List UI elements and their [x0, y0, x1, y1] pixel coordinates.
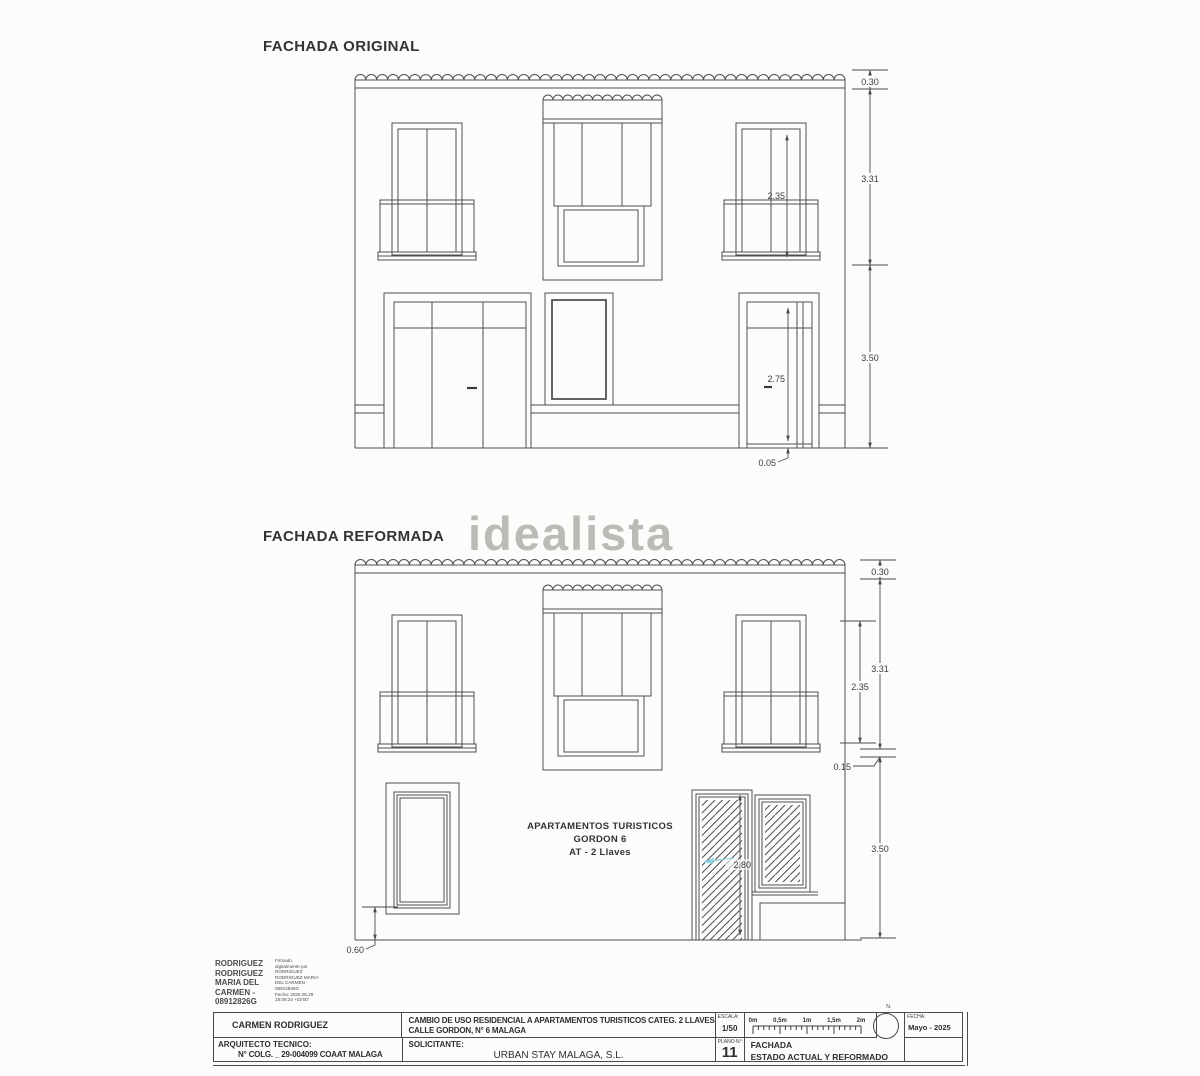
- balcony-window-right: [722, 615, 820, 752]
- apartment-use-label: APARTAMENTOS TURISTICOS GORDON 6 AT - 2 …: [527, 821, 673, 858]
- signature-name-line: 08912826G: [215, 997, 263, 1007]
- side-door: [739, 293, 819, 448]
- ground-window: [545, 293, 613, 405]
- dim-threshold: 0.05: [758, 458, 776, 468]
- digital-signature-block: RODRIGUEZ RODRIGUEZ MARIA DEL CARMEN - 0…: [215, 957, 365, 1009]
- facade-original-drawing: 0.30 3.31 3.50 2.35 2.75 0.05: [340, 60, 920, 495]
- sheet-title-cell: FACHADA ESTADO ACTUAL Y REFORMADO: [745, 1038, 906, 1062]
- dim-upper-floor: 3.31: [871, 664, 889, 674]
- project-line1: CAMBIO DE USO RESIDENCIAL A APARTAMENTOS…: [402, 1013, 714, 1026]
- date-cell: FECHA: Mayo - 2025: [905, 1013, 962, 1038]
- project-cell: CAMBIO DE USO RESIDENCIAL A APARTAMENTOS…: [402, 1013, 715, 1038]
- scale-value: 1/50: [716, 1024, 744, 1033]
- dim-door: 2.80: [733, 860, 751, 870]
- dim-band: 0.15: [833, 762, 851, 772]
- north-cell: N.: [877, 1013, 905, 1038]
- title-block-double-border-bottom: [213, 1065, 965, 1066]
- scale-bar-ticks: [753, 1026, 861, 1034]
- dim-ground-floor: 3.50: [871, 844, 889, 854]
- balcony-window-left: [378, 615, 476, 752]
- role-value: N° COLG. _ 29-004099 COAAT MALAGA: [214, 1049, 402, 1059]
- empty-cell: [905, 1038, 962, 1062]
- facade-reformed-shell: [355, 560, 862, 940]
- title-block-double-border-right: [967, 1012, 968, 1066]
- scale-tick-label: 1,5m: [827, 1018, 841, 1024]
- dim-ground-floor: 3.50: [861, 353, 879, 363]
- entrance-double-door: [384, 293, 531, 448]
- plan-label: PLANO N°:: [718, 1039, 743, 1045]
- project-line2: CALLE GORDON, N° 6 MALAGA: [402, 1026, 714, 1036]
- signature-detail-line: 18:09:24 +02'00': [275, 997, 318, 1003]
- signature-name-line: RODRIGUEZ: [215, 959, 263, 969]
- north-label: N.: [886, 1004, 891, 1010]
- dim-cornice: 0.30: [861, 77, 879, 87]
- facade-original-shell: [355, 75, 862, 448]
- role-label: ARQUITECTO TECNICO:: [214, 1038, 402, 1049]
- facade-reformed-dimensions: 0.30 3.31 3.50 2.35 0.15 0.60 2.80: [346, 560, 896, 955]
- scale-tick-label: 1m: [802, 1018, 811, 1024]
- scale-label: ESCALA:: [718, 1014, 739, 1020]
- architect-cell: ARQUITECTO TECNICO: N° COLG. _ 29-004099…: [214, 1038, 403, 1062]
- signature-details: Firmado digitalmente por RODRIGUEZ RODRI…: [275, 958, 318, 1003]
- scale-cell: ESCALA: 1/50: [716, 1013, 745, 1038]
- author-name: CARMEN RODRIGUEZ: [214, 1013, 401, 1030]
- plan-number-cell: PLANO N°: 11: [716, 1038, 745, 1062]
- facade-original-dimensions: 0.30 3.31 3.50 2.35 2.75 0.05: [758, 70, 888, 468]
- applicant-value: URBAN STAY MALAGA, S.L.: [403, 1049, 715, 1061]
- scale-bar: 0m 0,5m 1m 1,5m 2m: [745, 1013, 878, 1038]
- scale-tick-label: 2m: [856, 1018, 865, 1024]
- facade-reformed-drawing: APARTAMENTOS TURISTICOS GORDON 6 AT - 2 …: [340, 545, 920, 990]
- signature-name-line: RODRIGUEZ: [215, 969, 263, 979]
- reformed-ground-window-left: [386, 783, 459, 914]
- dim-balcony-window: 2.35: [767, 191, 785, 201]
- use-label-line1: APARTAMENTOS TURISTICOS: [527, 821, 673, 832]
- applicant-cell: SOLICITANTE: URBAN STAY MALAGA, S.L.: [403, 1038, 716, 1062]
- plinth-band: [355, 405, 845, 413]
- dim-door: 2.75: [767, 374, 785, 384]
- signature-name-line: MARIA DEL: [215, 978, 263, 988]
- title-block: CARMEN RODRIGUEZ CAMBIO DE USO RESIDENCI…: [213, 1012, 963, 1062]
- reformed-window-right: [752, 795, 845, 940]
- scale-tick-label: 0m: [748, 1018, 757, 1024]
- signature-name-line: CARMEN -: [215, 988, 263, 998]
- date-label: FECHA:: [907, 1014, 925, 1020]
- use-label-line3: AT - 2 Llaves: [569, 847, 631, 858]
- use-label-line2: GORDON 6: [573, 834, 626, 845]
- facade-reformed-title: FACHADA REFORMADA: [263, 528, 444, 545]
- sheet-title-line1: FACHADA: [745, 1038, 905, 1050]
- plan-number: 11: [716, 1044, 744, 1061]
- balcony-window-left: [378, 123, 476, 260]
- signature-name: RODRIGUEZ RODRIGUEZ MARIA DEL CARMEN - 0…: [215, 959, 263, 1007]
- scale-tick-label: 0,5m: [773, 1018, 787, 1024]
- dim-upper-floor: 3.31: [861, 174, 879, 184]
- dim-cornice: 0.30: [871, 567, 889, 577]
- applicant-label: SOLICITANTE:: [403, 1038, 715, 1049]
- facade-original-title: FACHADA ORIGINAL: [263, 38, 420, 55]
- dim-balcony-window: 2.35: [851, 682, 869, 692]
- scale-bar-cell: 0m 0,5m 1m 1,5m 2m: [745, 1013, 878, 1038]
- author-cell: CARMEN RODRIGUEZ: [214, 1013, 402, 1038]
- north-indicator-icon: [873, 1013, 899, 1039]
- center-window-awning: [543, 95, 662, 280]
- sheet-title-line2: ESTADO ACTUAL Y REFORMADO: [745, 1050, 905, 1062]
- dim-window-sill: 0.60: [346, 945, 364, 955]
- center-window-awning: [543, 585, 662, 770]
- drawing-sheet: FACHADA ORIGINAL: [0, 0, 1200, 1076]
